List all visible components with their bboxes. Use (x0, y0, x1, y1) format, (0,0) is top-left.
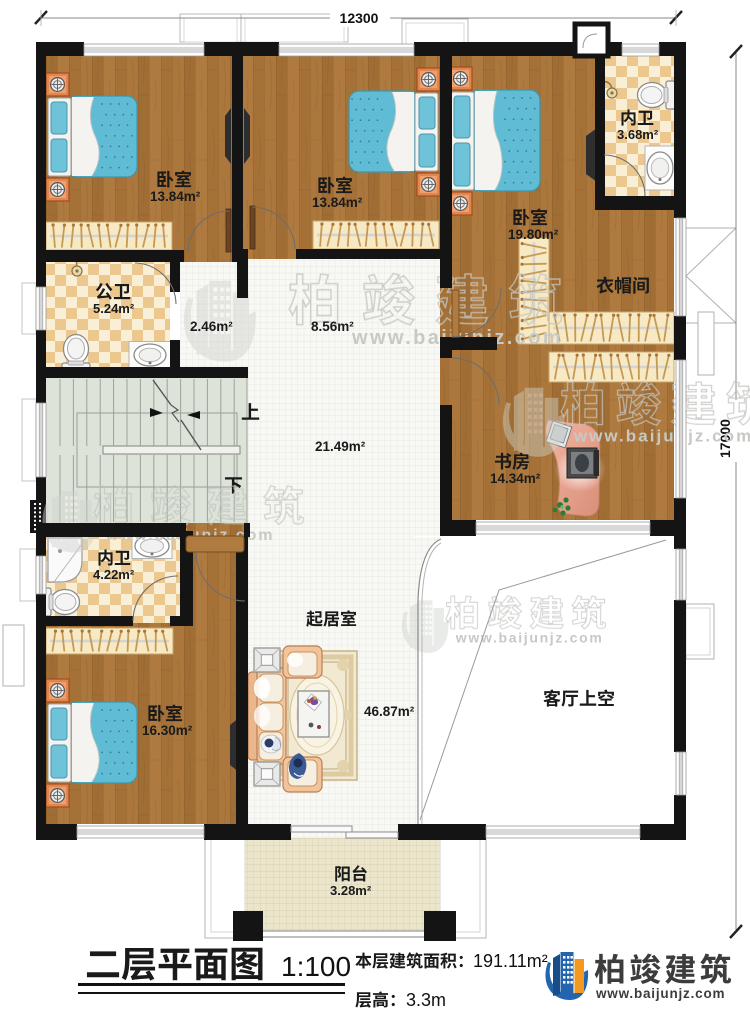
svg-text:8.56m²: 8.56m² (311, 319, 354, 334)
svg-text:13.84m²: 13.84m² (312, 195, 363, 210)
svg-text:4.22m²: 4.22m² (93, 567, 135, 582)
svg-text:21.49m²: 21.49m² (315, 439, 366, 454)
svg-text:16.30m²: 16.30m² (142, 723, 193, 738)
svg-text:1:100: 1:100 (281, 951, 351, 982)
svg-text:3.3m: 3.3m (406, 990, 446, 1010)
svg-text:2.46m²: 2.46m² (190, 319, 233, 334)
svg-text:3.28m²: 3.28m² (330, 883, 372, 898)
svg-text:191.11m²: 191.11m² (473, 951, 548, 971)
svg-text:46.87m²: 46.87m² (364, 704, 415, 719)
svg-text:13.84m²: 13.84m² (150, 189, 201, 204)
svg-text:www.baijunjz.com: www.baijunjz.com (455, 630, 604, 646)
svg-text:www.baijunjz.com: www.baijunjz.com (573, 427, 750, 446)
svg-text:19.80m²: 19.80m² (508, 227, 559, 242)
svg-text:12300: 12300 (340, 10, 379, 26)
svg-text:5.24m²: 5.24m² (93, 301, 135, 316)
svg-text:www.baijunjz.com: www.baijunjz.com (595, 986, 725, 1001)
svg-text:3.68m²: 3.68m² (617, 127, 659, 142)
svg-text:14.34m²: 14.34m² (490, 471, 541, 486)
